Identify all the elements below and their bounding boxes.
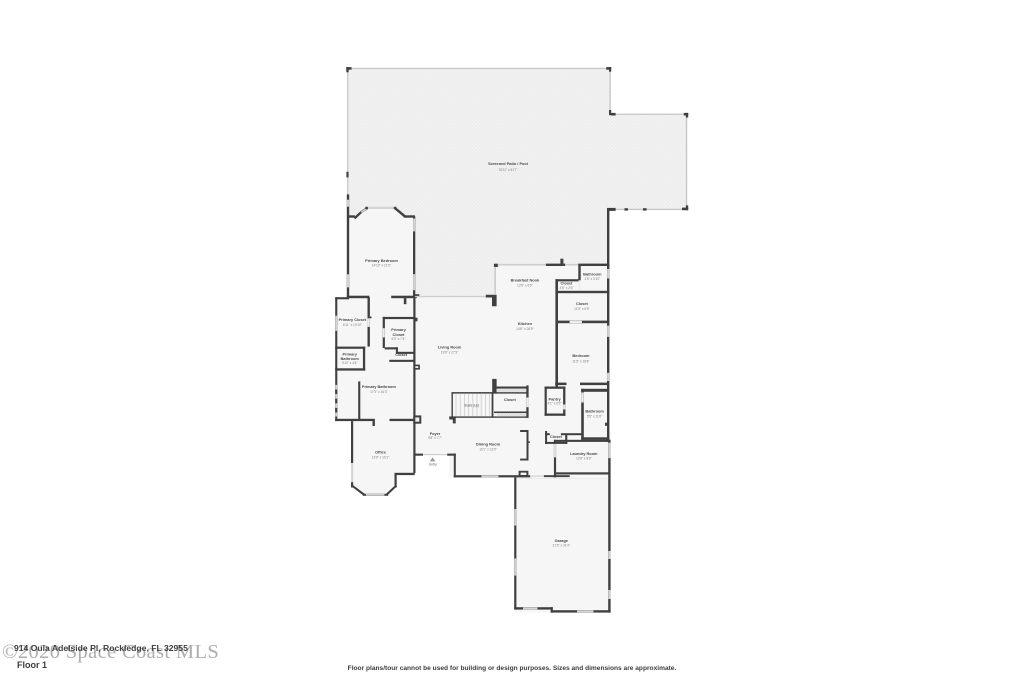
svg-text:13'6" x 6'9": 13'6" x 6'9" (517, 283, 533, 287)
svg-text:19'6" x 27'3": 19'6" x 27'3" (441, 351, 458, 355)
svg-text:Closet: Closet (576, 301, 589, 306)
svg-text:Primary Bathroom: Primary Bathroom (362, 384, 396, 389)
svg-text:6'11" x 10'10": 6'11" x 10'10" (343, 323, 362, 327)
svg-text:76'11" x 51'7": 76'11" x 51'7" (498, 168, 517, 172)
svg-text:11'5" x 6'9": 11'5" x 6'9" (574, 307, 589, 311)
svg-text:17'3" x 16'3": 17'3" x 16'3" (370, 390, 387, 394)
svg-text:Bathroom: Bathroom (585, 409, 604, 414)
svg-text:Kitchen: Kitchen (518, 321, 533, 326)
svg-text:21'6" x 31'4": 21'6" x 31'4" (553, 544, 570, 548)
svg-text:Bathroom: Bathroom (583, 271, 602, 276)
svg-text:Primary Bedroom: Primary Bedroom (365, 258, 398, 263)
svg-text:5'5" x 11'6": 5'5" x 11'6" (587, 414, 602, 418)
svg-text:11'5" x 16'8": 11'5" x 16'8" (572, 359, 589, 363)
svg-text:Office: Office (375, 450, 387, 455)
svg-text:5'10" x 4'6": 5'10" x 4'6" (342, 361, 358, 365)
svg-text:4'6" x 2'6": 4'6" x 2'6" (560, 286, 574, 290)
svg-text:Stairs (Up): Stairs (Up) (464, 403, 479, 407)
svg-text:Closet: Closet (395, 352, 408, 357)
svg-text:14'10" x 21'5": 14'10" x 21'5" (372, 264, 391, 268)
svg-text:Bedroom: Bedroom (572, 353, 590, 358)
svg-text:Laundry Room: Laundry Room (570, 451, 598, 456)
svg-text:Entry: Entry (429, 463, 437, 467)
svg-text:Primary Closet: Primary Closet (339, 317, 367, 322)
svg-text:14'6" x 26'9": 14'6" x 26'9" (516, 327, 533, 331)
svg-text:Garage: Garage (555, 538, 569, 543)
svg-text:Dining Room: Dining Room (476, 442, 501, 447)
svg-text:Closet: Closet (504, 397, 517, 402)
svg-text:Breakfast Nook: Breakfast Nook (511, 277, 540, 282)
svg-text:9'8" x 7'7": 9'8" x 7'7" (428, 436, 442, 440)
svg-text:16'1" x 13'9": 16'1" x 13'9" (479, 447, 496, 451)
svg-text:4'5" x 5'10": 4'5" x 5'10" (584, 277, 600, 281)
svg-text:Screened Patio / Pool: Screened Patio / Pool (488, 161, 528, 166)
svg-text:Living Room: Living Room (438, 345, 462, 350)
svg-text:13'9" x 16'1": 13'9" x 16'1" (372, 456, 389, 460)
svg-text:6'3" x 7'4": 6'3" x 7'4" (392, 337, 406, 341)
svg-text:Closet: Closet (550, 434, 563, 439)
svg-text:4'1" x 6'2": 4'1" x 6'2" (548, 402, 562, 406)
svg-text:12'8" x 8'9": 12'8" x 8'9" (576, 457, 592, 461)
